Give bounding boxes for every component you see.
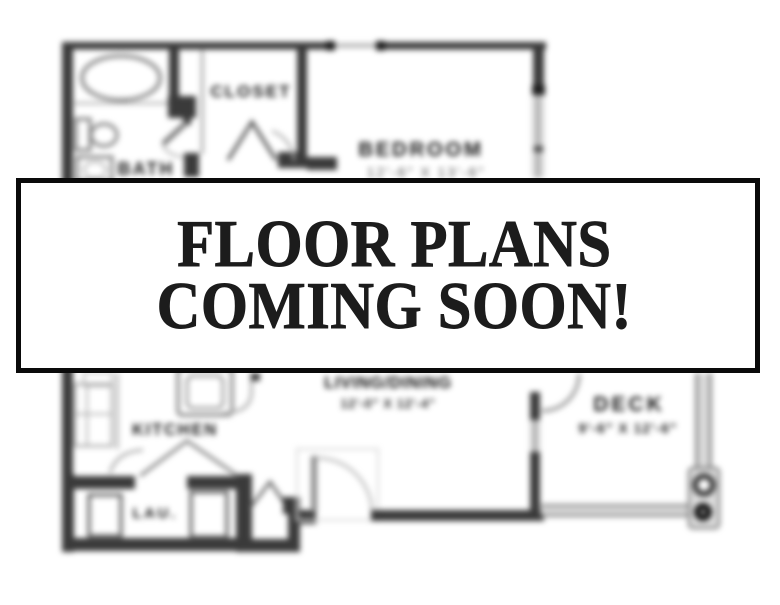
svg-text:CLOSET: CLOSET [211,82,292,101]
svg-text:LAU.: LAU. [133,505,178,522]
svg-text:9'-6" X 12'-6": 9'-6" X 12'-6" [578,421,677,436]
svg-text:BATH: BATH [118,159,175,179]
svg-text:12'-0" X 12'-4": 12'-0" X 12'-4" [340,397,435,411]
svg-text:BEDROOM: BEDROOM [358,138,483,161]
svg-text:LIVING/DINING: LIVING/DINING [324,374,452,392]
svg-text:DECK: DECK [593,393,665,416]
svg-text:KITCHEN: KITCHEN [132,421,218,439]
